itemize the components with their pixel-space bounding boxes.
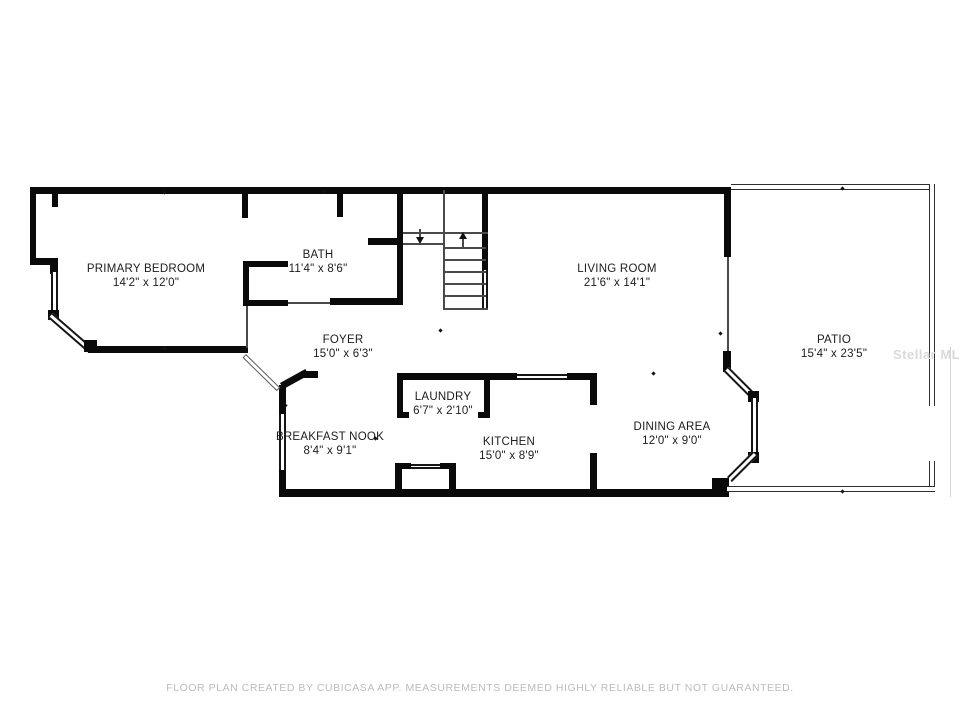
- room-label-foyer: FOYER 15'0" x 6'3": [313, 333, 373, 361]
- room-label-laundry: LAUNDRY 6'7" x 2'10": [413, 390, 473, 418]
- wall-stair-right: [482, 188, 488, 270]
- wall-nook-left-top: [279, 385, 286, 414]
- room-label-primary-bedroom: PRIMARY BEDROOM 14'2" x 12'0": [87, 262, 205, 290]
- bedroom-left-window: [51, 272, 58, 314]
- closet-bottom: [243, 300, 288, 306]
- stair-bottom-line: [443, 308, 488, 310]
- stair-right-thin: [482, 270, 488, 310]
- patio-rail-right-upper: [929, 184, 935, 406]
- wall-left-upper: [30, 187, 36, 265]
- wall-bath-stub: [337, 194, 343, 217]
- stair-landing-line-1: [403, 232, 488, 234]
- wall-laundry-right-stub: [478, 412, 490, 418]
- wall-tick: [283, 403, 287, 407]
- stair-tread-5: [445, 295, 486, 297]
- hall-opening-line-v: [246, 306, 248, 348]
- room-name: BATH: [289, 248, 348, 262]
- room-name: LIVING ROOM: [577, 262, 656, 276]
- room-dims: 21'6" x 14'1": [577, 276, 656, 290]
- room-dims: 8'4" x 9'1": [276, 444, 384, 458]
- room-name: PRIMARY BEDROOM: [87, 262, 205, 276]
- wall-tick: [651, 371, 655, 375]
- entry-door-leaf: [242, 354, 280, 391]
- room-name: BREAKFAST NOOK: [276, 430, 384, 444]
- room-name: LAUNDRY: [413, 390, 473, 404]
- pantry-door: [411, 464, 440, 469]
- room-name: DINING AREA: [634, 420, 711, 434]
- wall-nook-left-bottom: [279, 470, 286, 497]
- patio-slider-line: [727, 257, 729, 353]
- room-dims: 12'0" x 9'0": [634, 434, 711, 448]
- pantry-cap-left: [395, 463, 411, 469]
- stair-divider: [443, 190, 445, 310]
- hall-opening-line-h: [288, 302, 332, 304]
- wall-bedroom-bottom: [88, 346, 248, 353]
- patio-rail-top: [731, 184, 935, 190]
- wall-kitchen-right-bottom: [590, 453, 597, 497]
- room-label-kitchen: KITCHEN 15'0" x 8'9": [479, 435, 539, 463]
- pantry-cap-right: [440, 463, 456, 469]
- room-dims: 6'7" x 2'10": [413, 404, 473, 418]
- wall-kitchen-right-top: [590, 373, 597, 405]
- patio-rail-bottom: [727, 486, 935, 492]
- room-label-patio: PATIO 15'4" x 23'5": [801, 333, 867, 361]
- room-dims: 15'4" x 23'5": [801, 347, 867, 361]
- wall-living-right-top: [724, 187, 731, 257]
- room-dims: 14'2" x 12'0": [87, 276, 205, 290]
- room-label-living-room: LIVING ROOM 21'6" x 14'1": [577, 262, 656, 290]
- wall-laundry-left-stub: [397, 412, 409, 418]
- wall-tick: [718, 331, 722, 335]
- stair-tread-4: [445, 283, 486, 285]
- room-dims: 15'0" x 6'3": [313, 347, 373, 361]
- wall-bottom-exterior: [279, 489, 727, 497]
- stair-tread-2: [445, 259, 486, 261]
- wall-tick: [840, 489, 844, 493]
- wall-tick: [438, 328, 442, 332]
- wall-laundry-kitchen-top: [397, 373, 517, 380]
- stair-tread-3: [445, 271, 486, 273]
- floor-plan: PRIMARY BEDROOM 14'2" x 12'0" BATH 11'4"…: [0, 0, 960, 720]
- room-label-breakfast-nook: BREAKFAST NOOK 8'4" x 9'1": [276, 430, 384, 458]
- room-name: FOYER: [313, 333, 373, 347]
- kitchen-passthrough-window: [517, 374, 567, 380]
- wall-bath-right: [397, 194, 403, 305]
- wall-entry-stub: [301, 371, 318, 378]
- patio-overhang-line: [950, 347, 951, 497]
- stairs-down-arrow-icon: [416, 237, 424, 244]
- wall-bath-bottom: [330, 298, 403, 305]
- wall-top-exterior: [30, 187, 731, 194]
- room-label-dining-area: DINING AREA 12'0" x 9'0": [634, 420, 711, 448]
- room-name: KITCHEN: [479, 435, 539, 449]
- closet-top: [243, 261, 288, 267]
- wall-niche-stub: [52, 187, 58, 207]
- stair-tread-1: [445, 247, 486, 249]
- room-name: PATIO: [801, 333, 867, 347]
- stairs-up-arrow-icon: [459, 232, 467, 239]
- disclaimer-text: FLOOR PLAN CREATED BY CUBICASA APP. MEAS…: [166, 682, 794, 694]
- dining-bay-window-bottom: [727, 452, 757, 482]
- wall-bed-bath-stub: [242, 194, 248, 218]
- room-dims: 11'4" x 8'6": [289, 262, 348, 276]
- room-dims: 15'0" x 8'9": [479, 449, 539, 463]
- mls-watermark: Stellar MLS: [893, 347, 960, 362]
- dining-bay-window-mid: [751, 398, 758, 458]
- room-label-bath: BATH 11'4" x 8'6": [289, 248, 348, 276]
- wall-stair-stub: [368, 238, 397, 245]
- stair-up-stem: [462, 239, 464, 248]
